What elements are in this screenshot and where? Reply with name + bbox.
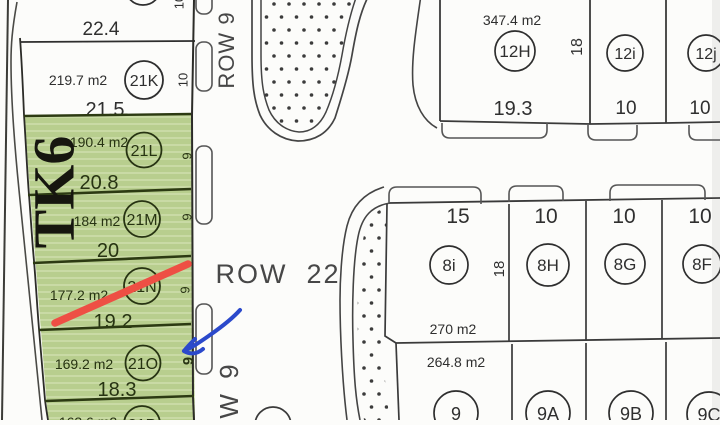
svg-text:21.5: 21.5 — [86, 99, 125, 121]
svg-text:21L: 21L — [131, 143, 158, 160]
svg-text:18: 18 — [491, 261, 508, 278]
svg-text:9B: 9B — [620, 404, 642, 420]
svg-text:10: 10 — [615, 98, 636, 119]
svg-text:264.8 m2: 264.8 m2 — [427, 354, 486, 370]
svg-text:10: 10 — [612, 205, 635, 228]
svg-text:9: 9 — [179, 213, 194, 220]
svg-text:169.2 m2: 169.2 m2 — [55, 356, 114, 372]
svg-text:21M: 21M — [126, 212, 157, 229]
svg-text:ROW 22: ROW 22 — [215, 259, 340, 289]
svg-text:19.2: 19.2 — [94, 311, 133, 333]
svg-text:19.3: 19.3 — [494, 98, 533, 120]
svg-text:9A: 9A — [537, 404, 559, 420]
svg-text:10: 10 — [689, 98, 710, 119]
svg-text:8F: 8F — [692, 255, 712, 274]
svg-text:22.4: 22.4 — [83, 19, 120, 40]
svg-text:12H: 12H — [499, 42, 530, 61]
svg-text:9: 9 — [181, 357, 197, 365]
svg-text:9: 9 — [451, 404, 461, 420]
svg-text:9: 9 — [179, 152, 194, 159]
svg-text:15: 15 — [446, 205, 469, 228]
svg-text:8H: 8H — [537, 256, 559, 275]
svg-text:8i: 8i — [442, 256, 455, 275]
svg-text:12i: 12i — [614, 46, 635, 63]
svg-text:10: 10 — [175, 73, 190, 87]
svg-text:270 m2: 270 m2 — [430, 321, 477, 337]
svg-text:8G: 8G — [614, 255, 637, 274]
svg-text:10: 10 — [171, 0, 186, 9]
svg-text:10: 10 — [688, 205, 711, 228]
svg-text:21O: 21O — [128, 356, 158, 373]
svg-text:219.7 m2: 219.7 m2 — [49, 72, 108, 88]
svg-text:ROW 9: ROW 9 — [214, 360, 244, 420]
svg-text:21K: 21K — [130, 73, 159, 90]
svg-text:9: 9 — [177, 286, 192, 293]
svg-text:163.6 m2: 163.6 m2 — [59, 414, 118, 420]
svg-text:10: 10 — [534, 205, 557, 228]
svg-text:ROW 9: ROW 9 — [214, 11, 239, 88]
svg-text:TK6: TK6 — [21, 136, 86, 249]
svg-text:18: 18 — [569, 38, 586, 56]
svg-text:347.4 m2: 347.4 m2 — [483, 12, 542, 28]
